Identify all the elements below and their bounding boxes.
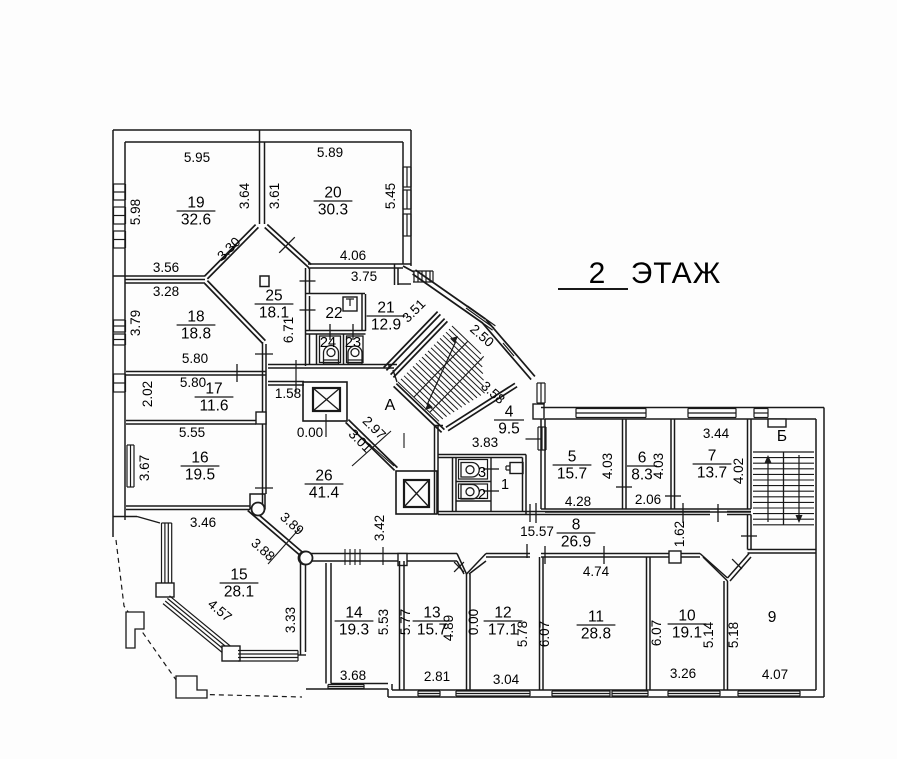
svg-text:1: 1 — [501, 477, 509, 493]
svg-text:3.67: 3.67 — [137, 455, 152, 481]
svg-text:2: 2 — [589, 257, 606, 290]
svg-text:6: 6 — [638, 450, 647, 467]
svg-text:10: 10 — [678, 608, 696, 625]
svg-text:12: 12 — [494, 605, 511, 622]
svg-text:11.6: 11.6 — [199, 398, 228, 415]
svg-text:9: 9 — [768, 609, 777, 626]
svg-text:6.71: 6.71 — [281, 317, 296, 343]
svg-text:32.6: 32.6 — [181, 212, 211, 229]
svg-text:3.83: 3.83 — [472, 435, 498, 450]
svg-text:3: 3 — [478, 465, 486, 481]
svg-text:9.5: 9.5 — [498, 421, 520, 438]
svg-text:1.58: 1.58 — [275, 386, 301, 401]
svg-text:41.4: 41.4 — [309, 485, 340, 502]
svg-text:8: 8 — [572, 517, 581, 534]
svg-text:4.06: 4.06 — [340, 248, 366, 263]
svg-text:2.02: 2.02 — [140, 381, 155, 407]
svg-text:3.42: 3.42 — [372, 515, 387, 541]
svg-text:4.07: 4.07 — [762, 667, 788, 682]
svg-text:ЭТАЖ: ЭТАЖ — [631, 257, 722, 290]
svg-text:5.77: 5.77 — [398, 609, 413, 635]
svg-text:3.26: 3.26 — [670, 666, 696, 681]
svg-text:18.8: 18.8 — [181, 326, 211, 343]
svg-text:4: 4 — [505, 404, 514, 421]
svg-text:5.80: 5.80 — [180, 375, 206, 390]
svg-text:17.1: 17.1 — [488, 622, 518, 639]
svg-text:12.9: 12.9 — [371, 317, 401, 334]
svg-text:5.89: 5.89 — [317, 145, 343, 160]
svg-text:11: 11 — [588, 609, 604, 626]
svg-text:13.7: 13.7 — [697, 465, 727, 482]
svg-text:5.53: 5.53 — [376, 609, 391, 635]
svg-text:Б: Б — [777, 428, 787, 445]
svg-text:3.46: 3.46 — [190, 515, 216, 530]
svg-text:24: 24 — [320, 335, 336, 351]
svg-text:5: 5 — [568, 449, 577, 466]
svg-text:8.3: 8.3 — [631, 467, 653, 484]
svg-text:5.80: 5.80 — [182, 351, 208, 366]
svg-text:3.79: 3.79 — [128, 310, 143, 336]
svg-text:14: 14 — [345, 605, 363, 622]
svg-text:26.9: 26.9 — [561, 534, 591, 551]
svg-text:5.45: 5.45 — [383, 183, 398, 209]
svg-text:6.07: 6.07 — [649, 620, 664, 646]
svg-text:4.28: 4.28 — [565, 494, 591, 509]
svg-text:19.5: 19.5 — [185, 467, 215, 484]
svg-text:0.00: 0.00 — [466, 609, 481, 635]
svg-text:5.95: 5.95 — [184, 150, 210, 165]
svg-text:3.44: 3.44 — [703, 426, 730, 441]
svg-text:1.62: 1.62 — [672, 521, 687, 547]
svg-text:28.8: 28.8 — [581, 626, 611, 643]
svg-text:3.68: 3.68 — [340, 668, 366, 683]
svg-text:3.04: 3.04 — [493, 672, 520, 687]
svg-text:3.33: 3.33 — [283, 607, 298, 633]
svg-text:20: 20 — [324, 185, 342, 202]
svg-text:5.55: 5.55 — [179, 425, 205, 440]
svg-text:19: 19 — [187, 195, 204, 212]
svg-text:5.98: 5.98 — [128, 199, 143, 225]
svg-text:26: 26 — [315, 468, 332, 485]
svg-text:7: 7 — [708, 448, 717, 465]
svg-text:4.89: 4.89 — [441, 615, 456, 641]
svg-text:25: 25 — [265, 288, 282, 305]
svg-text:19.1: 19.1 — [672, 625, 702, 642]
svg-text:3.28: 3.28 — [153, 284, 179, 299]
svg-text:4.02: 4.02 — [731, 458, 746, 484]
svg-text:2: 2 — [478, 487, 486, 503]
svg-text:4.03: 4.03 — [651, 453, 666, 479]
svg-text:6.07: 6.07 — [537, 621, 552, 647]
svg-text:3.75: 3.75 — [351, 269, 377, 284]
svg-text:2.06: 2.06 — [635, 492, 661, 507]
svg-text:4.03: 4.03 — [600, 453, 615, 479]
svg-text:22: 22 — [325, 305, 342, 322]
svg-text:0.00: 0.00 — [297, 425, 323, 440]
svg-text:А: А — [385, 397, 396, 414]
svg-text:30.3: 30.3 — [318, 202, 348, 219]
svg-text:13: 13 — [423, 605, 440, 622]
svg-text:15.57: 15.57 — [520, 524, 554, 539]
svg-text:5.78: 5.78 — [515, 621, 530, 647]
svg-text:19.3: 19.3 — [339, 622, 369, 639]
svg-text:4.74: 4.74 — [583, 564, 610, 579]
svg-text:2.81: 2.81 — [424, 669, 450, 684]
svg-text:28.1: 28.1 — [224, 584, 254, 601]
svg-text:16: 16 — [191, 450, 208, 467]
svg-text:3.56: 3.56 — [153, 260, 179, 275]
svg-text:23: 23 — [345, 335, 361, 351]
svg-text:15.7: 15.7 — [557, 466, 587, 483]
svg-text:3.61: 3.61 — [267, 183, 282, 209]
svg-text:18: 18 — [187, 309, 204, 326]
svg-text:15: 15 — [230, 567, 247, 584]
svg-text:5.14: 5.14 — [701, 621, 716, 648]
svg-text:17: 17 — [205, 381, 222, 398]
svg-text:5.18: 5.18 — [726, 622, 741, 648]
svg-text:3.64: 3.64 — [237, 182, 252, 209]
svg-text:21: 21 — [377, 300, 394, 317]
